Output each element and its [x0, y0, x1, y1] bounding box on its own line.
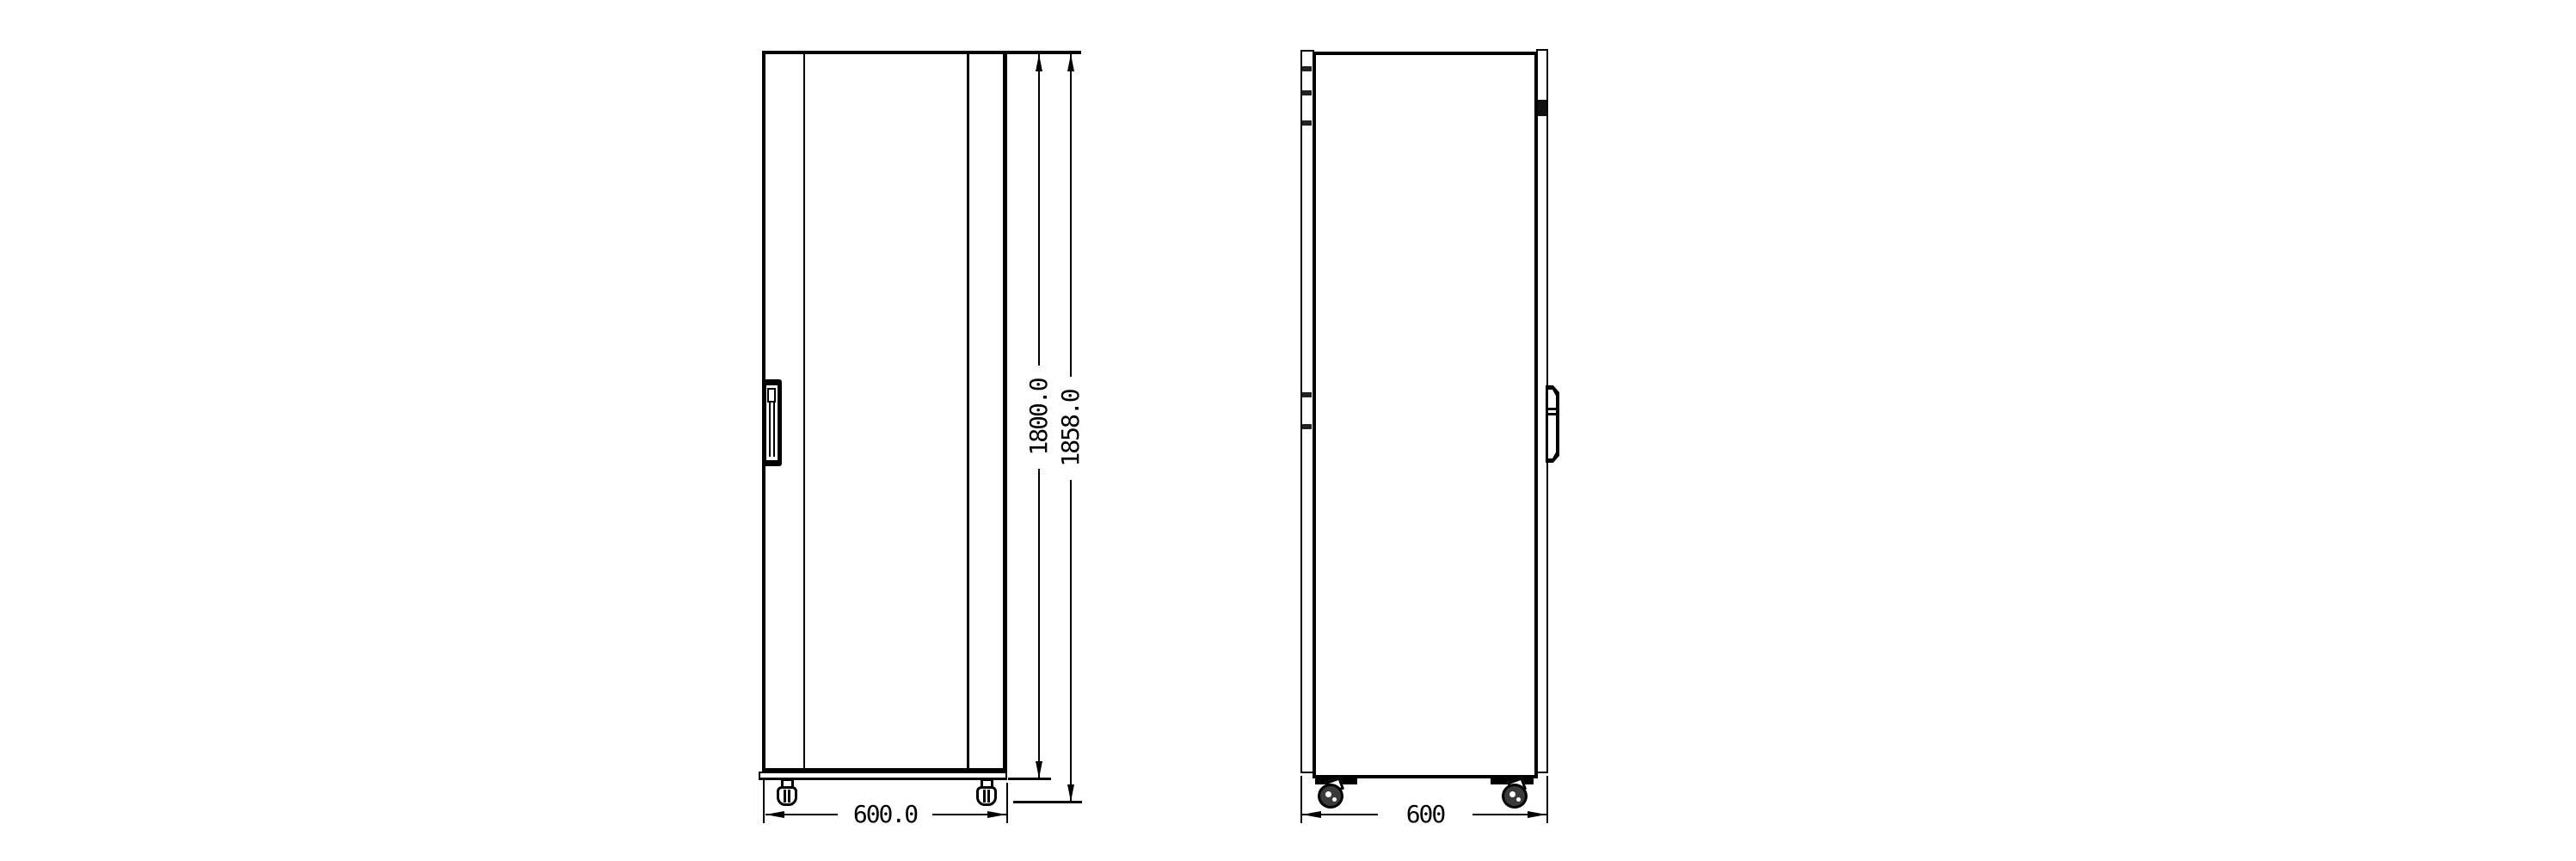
extension-line [1546, 776, 1548, 823]
side-depth-dim-label: 600 [1378, 802, 1472, 827]
arrow-left-icon [1302, 811, 1321, 818]
cad-drawing-canvas: 600.0 1800.0 1858.0 [0, 0, 2576, 861]
side-depth-dimension: 600 [0, 0, 2576, 861]
arrow-right-icon [1528, 811, 1546, 818]
